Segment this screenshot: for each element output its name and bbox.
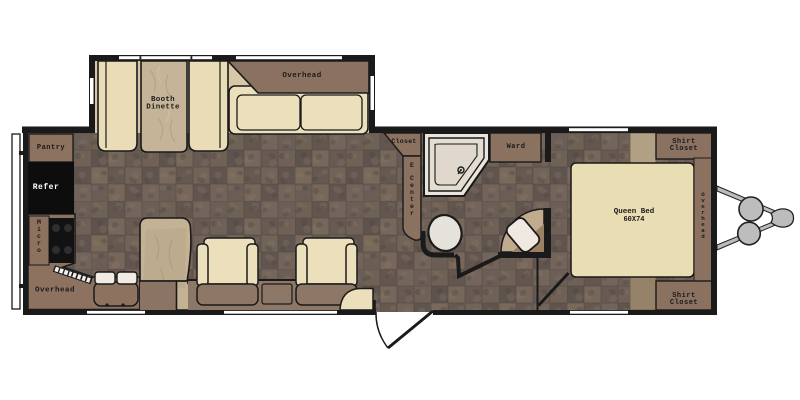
- svg-text:Overhead: Overhead: [35, 287, 75, 295]
- svg-text:c: c: [37, 233, 41, 240]
- svg-text:e: e: [410, 203, 414, 210]
- svg-text:o: o: [37, 247, 41, 254]
- svg-text:Overhead: Overhead: [282, 72, 321, 80]
- svg-text:t: t: [410, 196, 414, 203]
- svg-text:r: r: [410, 210, 414, 217]
- svg-text:Closet: Closet: [670, 299, 698, 307]
- svg-text:d: d: [701, 233, 705, 240]
- svg-text:e: e: [410, 182, 414, 189]
- svg-text:M: M: [37, 219, 41, 226]
- svg-text:n: n: [410, 189, 414, 196]
- svg-text:Pantry: Pantry: [37, 144, 66, 152]
- svg-text:i: i: [37, 226, 41, 233]
- svg-text:60X74: 60X74: [623, 216, 644, 224]
- svg-text:Ward: Ward: [507, 143, 526, 151]
- svg-text:C: C: [410, 175, 414, 182]
- svg-text:Queen Bed: Queen Bed: [614, 208, 655, 216]
- svg-text:Closet: Closet: [670, 145, 698, 153]
- svg-text:Dinette: Dinette: [146, 104, 180, 112]
- svg-text:Closet: Closet: [391, 138, 416, 145]
- svg-text:r: r: [37, 240, 41, 247]
- svg-text:E: E: [410, 162, 414, 169]
- svg-text:Refer: Refer: [33, 183, 60, 192]
